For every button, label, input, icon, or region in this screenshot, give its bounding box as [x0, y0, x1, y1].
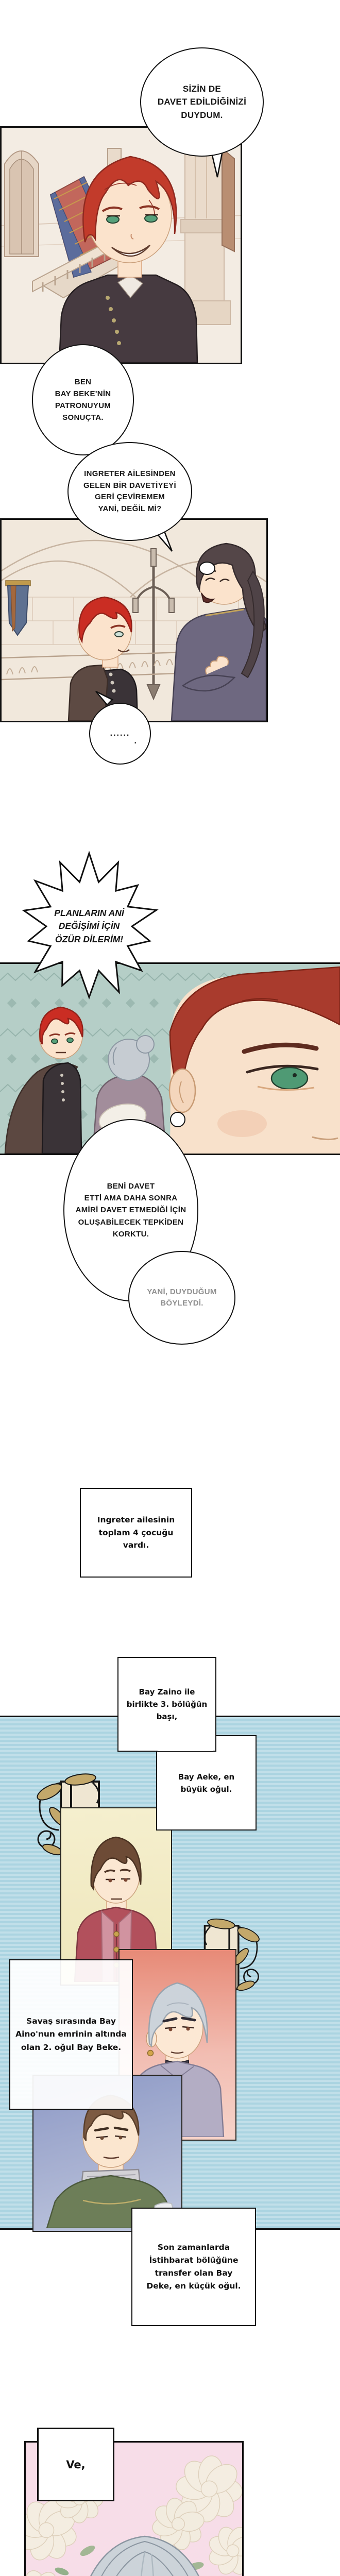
burst-bubble-text: PLANLARIN ANİ DEĞİŞİMİ İÇİN ÖZÜR DİLERİM… — [15, 849, 163, 1004]
red-haired-boy — [39, 1007, 83, 1154]
speech-bubble-1-text: SİZİN DE DAVET EDİLDİĞİNİZİ DUYDUM. — [158, 82, 246, 122]
speech-bubble-7-text: YANİ, DUYDUĞUM BÖYLEYDİ. — [147, 1286, 216, 1310]
hall-conversation-scene — [2, 520, 266, 721]
caption-aeke-text: Bay Aeke, en büyük oğul. — [178, 1771, 234, 1795]
speech-bubble-2-text: BEN BAY BEKE'NİN PATRONUYUM SONUÇTA. — [55, 376, 111, 424]
panel-hall-conversation — [0, 518, 268, 722]
webtoon-page: SİZİN DE DAVET EDİLDİĞİNİZİ DUYDUM. BEN … — [0, 0, 340, 2576]
speech-bubble-6-text: BENİ DAVET ETTİ AMA DAHA SONRA AMİRİ DAV… — [76, 1180, 186, 1240]
dots-bubble-extra-dot: . — [134, 737, 137, 746]
big-face-closeup — [169, 967, 340, 1154]
speech-bubble-7: YANİ, DUYDUĞUM BÖYLEYDİ. — [128, 1251, 235, 1345]
dots-bubble: ...... . — [89, 703, 151, 765]
dots-bubble-text: ...... — [110, 729, 130, 738]
caption-family-intro-text: Ingreter ailesinin toplam 4 çocuğu vardı… — [97, 1514, 175, 1552]
thought-bubble-satellite — [170, 1112, 185, 1127]
caption-ve: Ve, — [37, 2428, 114, 2501]
caption-beke: Savaş sırasında Bay Aino'nun emrinin alt… — [9, 1959, 133, 2110]
puff-bubble — [199, 562, 215, 575]
silver-haired-lady — [55, 2536, 235, 2576]
caption-ve-text: Ve, — [66, 2459, 85, 2471]
caption-deke: Son zamanlarda İstihbarat bölüğüne trans… — [131, 2208, 256, 2326]
speech-bubble-3: INGRETER AİLESİNDEN GELEN BİR DAVETİYEYİ… — [67, 442, 192, 541]
speech-bubble-1: SİZİN DE DAVET EDİLDİĞİNİZİ DUYDUM. — [140, 47, 264, 157]
caption-family-intro: Ingreter ailesinin toplam 4 çocuğu vardı… — [80, 1488, 192, 1578]
caption-deke-text: Son zamanlarda İstihbarat bölüğüne trans… — [146, 2241, 241, 2292]
speech-bubble-2: BEN BAY BEKE'NİN PATRONUYUM SONUÇTA. — [32, 344, 134, 455]
banner — [6, 581, 30, 635]
speech-bubble-3-text: INGRETER AİLESİNDEN GELEN BİR DAVETİYEYİ… — [83, 468, 176, 515]
caption-zaino-text: Bay Zaino ile birlikte 3. bölüğün başı, — [127, 1686, 207, 1723]
caption-beke-text: Savaş sırasında Bay Aino'nun emrinin alt… — [15, 2015, 127, 2055]
burst-bubble: PLANLARIN ANİ DEĞİŞİMİ İÇİN ÖZÜR DİLERİM… — [15, 849, 163, 1004]
caption-union-patch — [158, 1735, 213, 1751]
arched-window — [5, 151, 39, 257]
